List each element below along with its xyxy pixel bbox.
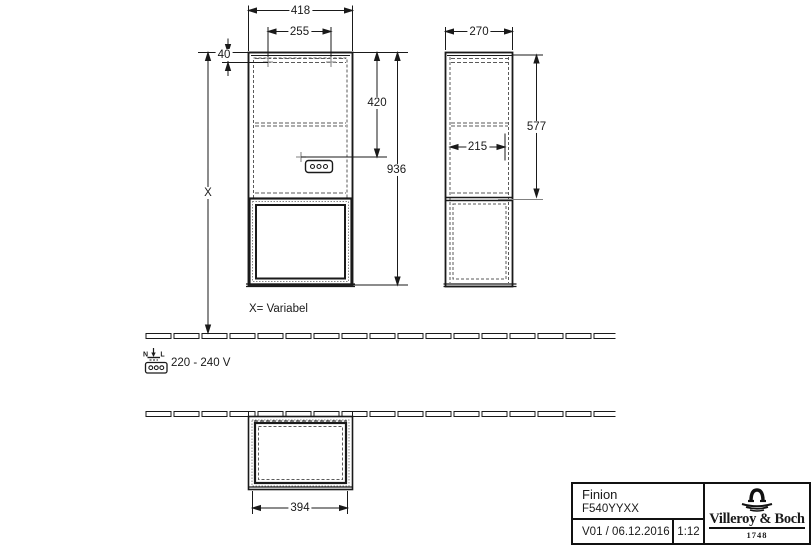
dim-label-front-width: 418 — [289, 4, 312, 16]
drawing-scale: 1:12 — [677, 526, 699, 538]
brand-name: Villeroy & Boch — [709, 512, 804, 529]
dim-label-side-socket-depth: 215 — [466, 141, 489, 153]
wall-hatch-top — [146, 333, 616, 339]
title-block: Finion F540YYXX V01 / 06.12.2016 1:12 Vi… — [571, 482, 811, 545]
dim-label-variable-height: X — [202, 187, 214, 199]
title-block-brand-cell: Villeroy & Boch 1748 — [705, 484, 809, 543]
villeroy-boch-logo-icon — [735, 486, 779, 512]
article-number: F540YYXX — [582, 503, 703, 515]
dim-label-front-total-height: 936 — [385, 164, 408, 176]
wall-hatch-bottom — [146, 411, 616, 417]
dim-label-plan-opening-width: 394 — [288, 502, 311, 514]
terminal-label-live: L — [160, 351, 164, 358]
front-view-drawing — [246, 53, 355, 287]
title-block-product-cell: Finion F540YYXX — [573, 484, 705, 520]
title-block-version-cell: V01 / 06.12.2016 — [573, 520, 674, 543]
side-view-drawing — [444, 53, 517, 287]
version-date: V01 / 06.12.2016 — [582, 526, 670, 538]
voltage-note: 220 - 240 V — [171, 357, 230, 370]
dim-label-side-depth: 270 — [467, 25, 490, 37]
socket-icon — [306, 161, 333, 173]
technical-drawing-canvas — [0, 0, 811, 545]
product-name: Finion — [582, 487, 703, 502]
variable-dimension-note: X= Variabel — [249, 303, 308, 316]
brand-year: 1748 — [747, 530, 768, 540]
plan-view-drawing — [249, 412, 353, 490]
terminal-label-neutral: N — [143, 351, 148, 358]
title-block-scale-cell: 1:12 — [674, 520, 705, 543]
dim-label-front-socket-height: 420 — [365, 96, 388, 108]
dim-label-front-hole-offset: 40 — [216, 49, 233, 61]
dim-label-side-upper-height: 577 — [525, 120, 548, 132]
spec-sheet-page: { "colors": { "line": "#1a1a1a", "hidden… — [0, 0, 811, 545]
dim-label-front-hole-spacing: 255 — [288, 25, 311, 37]
